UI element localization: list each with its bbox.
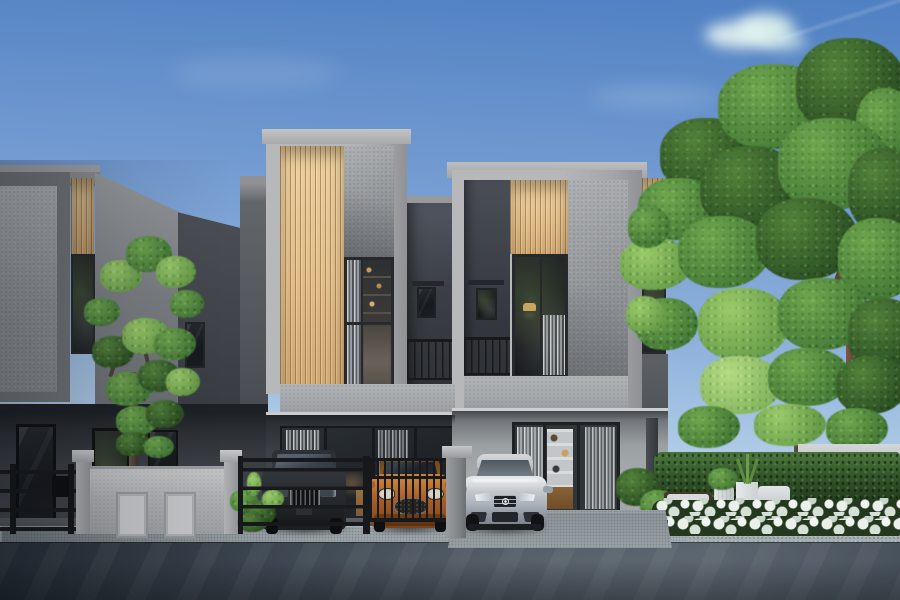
townhouse-exterior-render xyxy=(0,0,900,600)
vignette xyxy=(0,0,900,600)
